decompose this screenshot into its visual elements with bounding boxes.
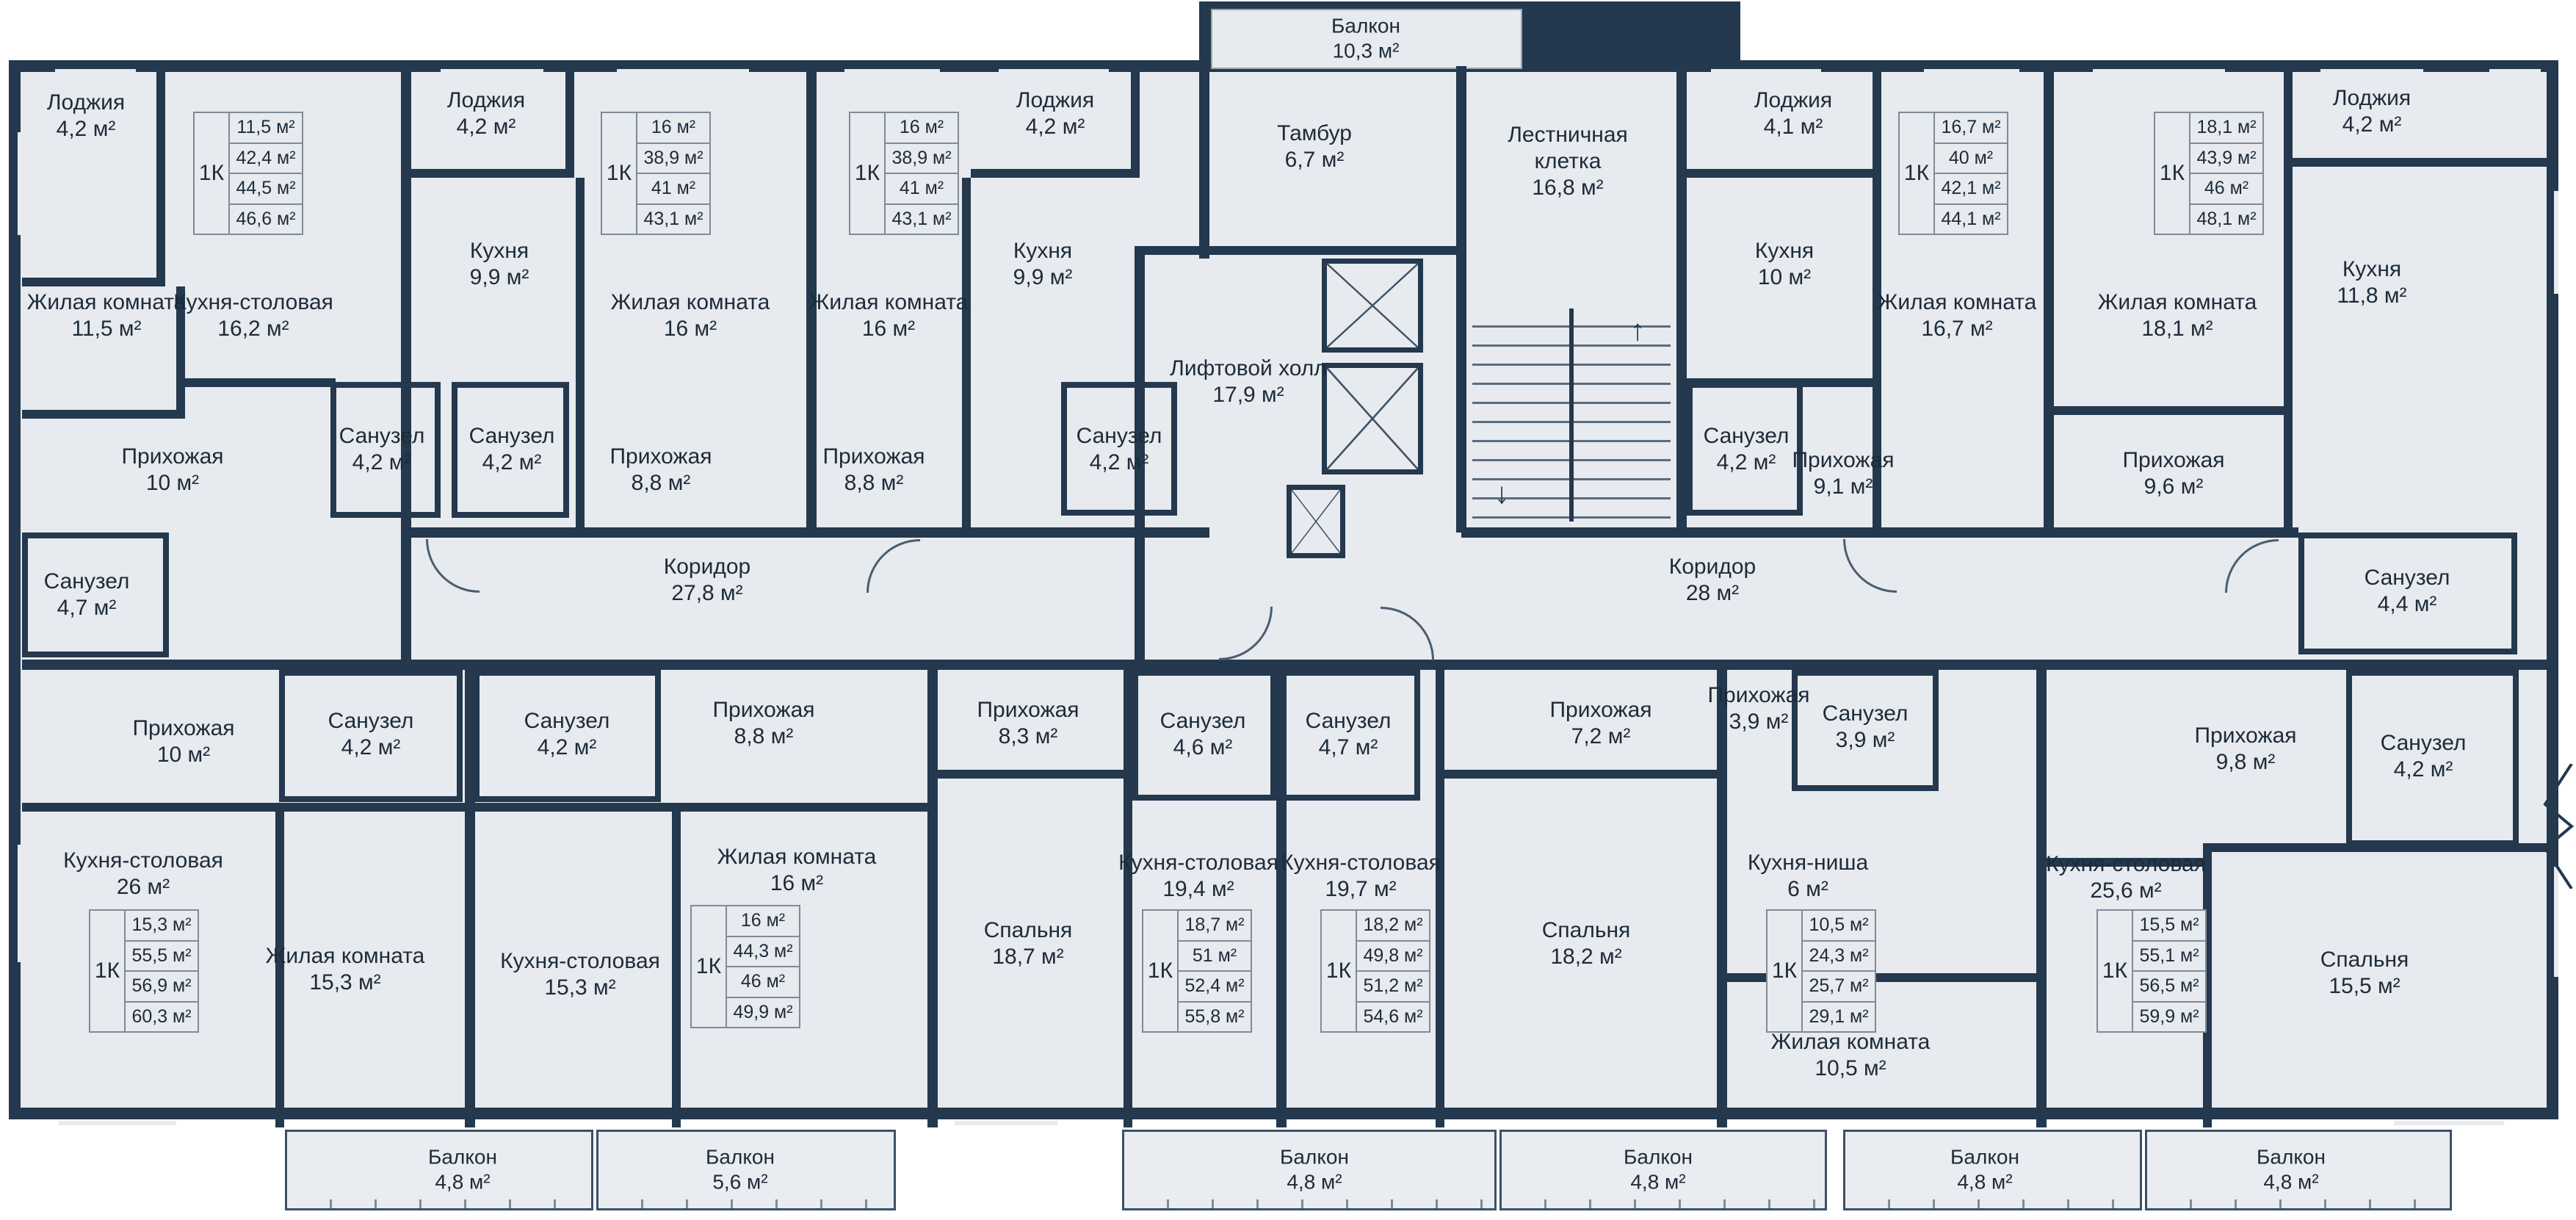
apartment-area: 18,7 м² [1179,911,1251,942]
room-label: Кухня-столовая25,6 м² [2046,851,2206,904]
room-label: Санузел4,2 м² [524,708,610,761]
apartment-area: 15,5 м² [2133,911,2205,942]
balcony-label: Балкон4,8 м² [1950,1144,2019,1194]
room-label: Жилая комната16 м² [611,289,770,342]
apartment-area: 15,3 м² [126,911,198,942]
apartment-area: 16 м² [886,113,958,144]
room-label: Прихожая7,2 м² [1549,697,1651,750]
room-label: Кухня-столовая19,7 м² [1281,850,1441,903]
room-label: Санузел4,7 м² [1306,708,1392,761]
apartment-card: 1К 16 м² 44,3 м² 46 м² 49,9 м² [690,905,800,1028]
room-label: Жилая комната16,7 м² [1878,289,2037,342]
room-label: Жилая комната10,5 м² [1771,1029,1931,1082]
apartment-type: 1К [1322,911,1357,1031]
apartment-area: 41 м² [637,174,709,205]
apartment-card: 1К 16,7 м² 40 м² 42,1 м² 44,1 м² [1898,112,2008,235]
apartment-area: 25,7 м² [1803,972,1875,1003]
room-label: Прихожая10 м² [121,444,223,497]
floor-plan: ↑ ↓ Лоджия4,2 м² Жилая комната11,5 м² Ку… [0,0,2576,1220]
apartment-area: 44,3 м² [727,937,799,968]
room-label: Санузел4,2 м² [1704,423,1790,476]
apartment-area: 43,9 м² [2190,144,2262,175]
apartment-area: 43,1 м² [637,205,709,234]
room-label: Прихожая8,8 м² [609,444,712,497]
apartment-area: 51 м² [1179,942,1251,972]
room-label: Лоджия4,2 м² [47,90,125,142]
room-label: Кухня-столовая26 м² [63,848,223,900]
apartment-area: 38,9 м² [637,144,709,175]
elevator-x-icon [1327,264,1418,347]
apartment-area: 42,1 м² [1935,174,2007,205]
apartment-area: 51,2 м² [1357,972,1429,1003]
apartment-card: 1К 10,5 м² 24,3 м² 25,7 м² 29,1 м² [1766,909,1876,1033]
stairs-up-arrow-icon: ↑ [1630,314,1645,347]
apartment-area: 46 м² [2190,174,2262,205]
apartment-card: 1К 18,1 м² 43,9 м² 46 м² 48,1 м² [2154,112,2264,235]
apartment-area: 60,3 м² [126,1003,198,1032]
room-label: Кухня11,8 м² [2337,256,2406,309]
apartment-area: 55,5 м² [126,942,198,972]
room-label: Прихожая9,8 м² [2194,723,2296,776]
apartment-area: 56,9 м² [126,972,198,1003]
apartment-card: 1К 18,7 м² 51 м² 52,4 м² 55,8 м² [1142,909,1252,1033]
apartment-card: 1К 16 м² 38,9 м² 41 м² 43,1 м² [601,112,711,235]
room-label: Прихожая9,6 м² [2122,447,2224,500]
room-label: Жилая комната16 м² [717,844,877,897]
apartment-area: 16 м² [637,113,709,144]
room-label: Кухня-ниша6 м² [1748,850,1868,903]
apartment-area: 10,5 м² [1803,911,1875,942]
apartment-type: 1К [1900,113,1935,234]
room-label: Кухня9,9 м² [1013,238,1073,291]
balcony-label: Балкон4,8 м² [1624,1144,1693,1194]
apartment-type: 1К [2098,911,2133,1031]
room-label: Санузел4,2 м² [1077,423,1162,476]
apartment-area: 43,1 м² [886,205,958,234]
apartment-area: 52,4 м² [1179,972,1251,1003]
room-label: Тамбур6,7 м² [1277,120,1352,173]
room-label: Санузел3,9 м² [1823,701,1909,754]
room-label: Жилая комната18,1 м² [2098,289,2257,342]
apartment-area: 49,8 м² [1357,942,1429,972]
room-label: Кухня9,9 м² [470,238,529,291]
apartment-card: 1К 11,5 м² 42,4 м² 44,5 м² 46,6 м² [193,112,303,235]
balcony-label: Балкон4,8 м² [428,1144,497,1194]
room-label: Коридор28 м² [1669,554,1756,607]
apartment-card: 1К 16 м² 38,9 м² 41 м² 43,1 м² [849,112,959,235]
elevator-x-icon [1327,368,1418,469]
apartment-area: 49,9 м² [727,998,799,1028]
apartment-area: 24,3 м² [1803,942,1875,972]
room-label: Прихожая10 м² [132,715,234,768]
stairs-divider [1569,308,1574,521]
room-label: Спальня18,2 м² [1542,917,1631,970]
apartment-area: 42,4 м² [230,144,302,175]
apartment-area: 16 м² [727,906,799,937]
room-label: Прихожая3,9 м² [1707,682,1809,735]
apartment-type: 1К [1143,911,1179,1031]
room-label: Лоджия4,1 м² [1754,87,1832,140]
room-label: Лоджия4,2 м² [447,87,525,140]
apartment-area: 41 м² [886,174,958,205]
apartment-area: 29,1 м² [1803,1003,1875,1032]
elevator-x-icon [1292,490,1340,553]
room-label: Коридор27,8 м² [664,554,750,607]
room-label: Прихожая8,8 м² [822,444,925,497]
room-label: Спальня18,7 м² [984,917,1073,970]
room-label: Прихожая8,3 м² [977,697,1079,750]
apartment-area: 59,9 м² [2133,1003,2205,1032]
room-label: Санузел4,7 м² [44,569,130,621]
apartment-area: 55,8 м² [1179,1003,1251,1032]
room-label: Прихожая8,8 м² [712,697,814,750]
stairs-down-arrow-icon: ↓ [1494,477,1509,510]
apartment-area: 48,1 м² [2190,205,2262,234]
apartment-type: 1К [90,911,126,1031]
apartment-type: 1К [195,113,230,234]
apartment-area: 46,6 м² [230,205,302,234]
apartment-area: 18,2 м² [1357,911,1429,942]
room-label: Санузел4,4 м² [2365,565,2450,618]
room-label: Кухня-столовая15,3 м² [500,948,660,1001]
room-label: Кухня-столовая19,4 м² [1118,850,1278,903]
apartment-area: 55,1 м² [2133,942,2205,972]
apartment-card: 1К 15,5 м² 55,1 м² 56,5 м² 59,9 м² [2096,909,2207,1033]
elevator-shaft [1322,259,1423,353]
room-label: Лестничная клетка16,8 м² [1483,122,1652,201]
room-label: Спальня15,5 м² [2320,947,2409,1000]
balcony-label: Балкон4,8 м² [1280,1144,1349,1194]
balcony-label: Балкон4,8 м² [2257,1144,2326,1194]
room-label: Лифтовой холл17,9 м² [1170,355,1327,408]
apartment-card: 1К 15,3 м² 55,5 м² 56,9 м² 60,3 м² [89,909,199,1033]
apartment-area: 46 м² [727,967,799,998]
elevator-shaft [1322,363,1423,474]
apartment-area: 54,6 м² [1357,1003,1429,1032]
room-label: Санузел4,2 м² [339,423,425,476]
room-label: Санузел4,2 м² [2381,730,2467,783]
apartment-type: 1К [850,113,886,234]
room-label: Кухня10 м² [1755,238,1814,291]
room-label: Жилая комната11,5 м² [27,289,187,342]
apartment-area: 40 м² [1935,144,2007,175]
apartment-area: 11,5 м² [230,113,302,144]
apartment-area: 44,1 м² [1935,205,2007,234]
balcony-label: Балкон5,6 м² [706,1144,775,1194]
room-label: Санузел4,2 м² [469,423,555,476]
room-label: Лоджия4,2 м² [1016,87,1094,140]
break-mark-icon [2542,764,2575,889]
room-label: Балкон10,3 м² [1331,13,1400,62]
apartment-area: 56,5 м² [2133,972,2205,1003]
room-label: Жилая комната15,3 м² [266,943,425,996]
apartment-type: 1К [692,906,727,1027]
apartment-type: 1К [1768,911,1803,1031]
room-label: Прихожая9,1 м² [1792,447,1894,500]
room-label: Жилая комната16 м² [809,289,969,342]
apartment-type: 1К [2155,113,2190,234]
room-label: Кухня-столовая16,2 м² [173,289,333,342]
apartment-type: 1К [602,113,637,234]
elevator-shaft [1287,485,1345,558]
apartment-area: 38,9 м² [886,144,958,175]
room-label: Санузел4,2 м² [328,708,414,761]
apartment-area: 18,1 м² [2190,113,2262,144]
apartment-area: 44,5 м² [230,174,302,205]
apartment-area: 16,7 м² [1935,113,2007,144]
room-label: Лоджия4,2 м² [2333,85,2411,138]
apartment-card: 1К 18,2 м² 49,8 м² 51,2 м² 54,6 м² [1320,909,1430,1033]
room-label: Санузел4,6 м² [1160,708,1246,761]
